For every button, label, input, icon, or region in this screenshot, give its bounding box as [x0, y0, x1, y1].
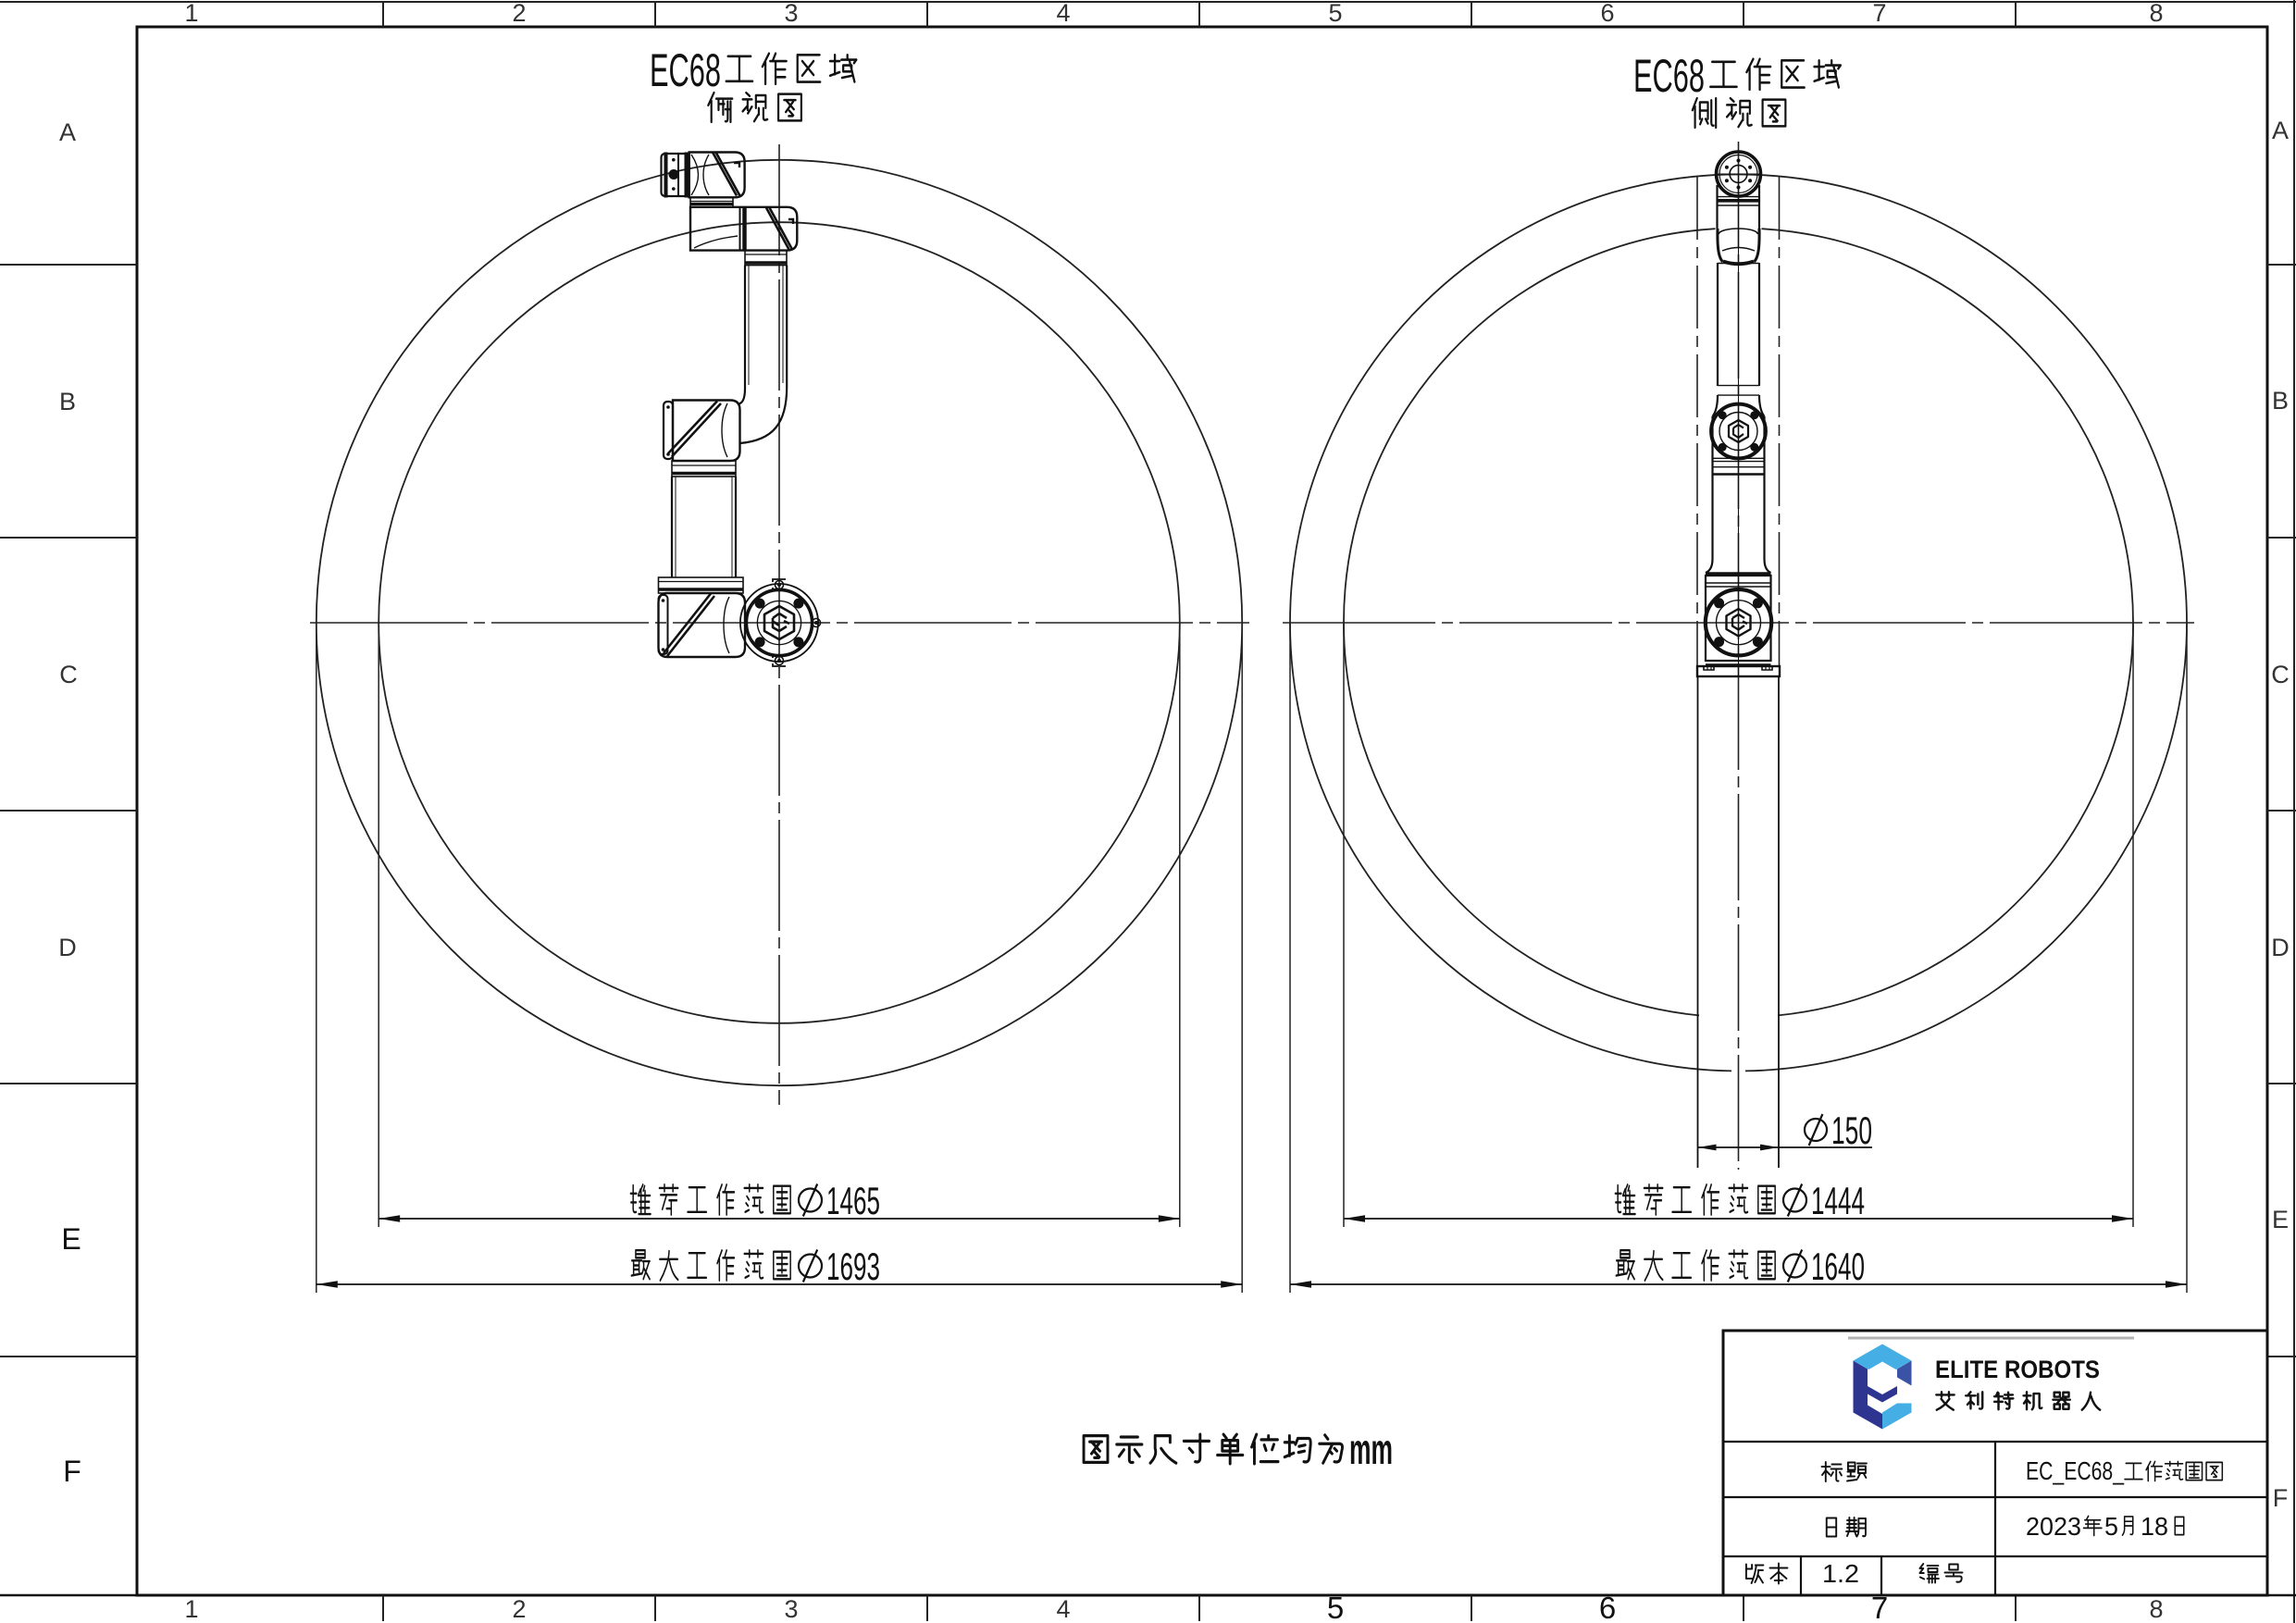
svg-text:6: 6 [1600, 0, 1614, 27]
svg-text:3: 3 [784, 1595, 798, 1623]
svg-text:C: C [2271, 661, 2290, 688]
svg-text:1693: 1693 [826, 1245, 880, 1288]
svg-text:4: 4 [1056, 1595, 1070, 1623]
svg-text:2023: 2023 [2026, 1512, 2081, 1541]
svg-text:5: 5 [2104, 1512, 2118, 1541]
svg-text:7: 7 [1872, 0, 1886, 27]
svg-text:2: 2 [512, 1595, 526, 1623]
svg-text:F: F [2273, 1484, 2289, 1512]
svg-text:1640: 1640 [1811, 1245, 1865, 1288]
svg-text:A: A [2272, 117, 2289, 144]
svg-text:E: E [61, 1222, 81, 1256]
svg-text:5: 5 [1327, 1591, 1344, 1623]
svg-text:B: B [2272, 387, 2289, 415]
svg-text:2: 2 [512, 0, 526, 27]
svg-text:D: D [2271, 934, 2290, 961]
svg-text:8: 8 [2149, 0, 2163, 27]
svg-text:C: C [59, 661, 78, 688]
svg-text:A: A [59, 118, 76, 146]
svg-text:6: 6 [1599, 1591, 1616, 1623]
svg-text:1: 1 [184, 0, 198, 27]
svg-text:18: 18 [2141, 1512, 2168, 1541]
svg-text:1.2: 1.2 [1822, 1559, 1859, 1588]
svg-text:EC68: EC68 [1633, 50, 1705, 102]
svg-text:1444: 1444 [1811, 1179, 1865, 1222]
svg-text:EC_EC68_: EC_EC68_ [2026, 1456, 2124, 1485]
svg-text:D: D [58, 934, 77, 961]
svg-text:4: 4 [1056, 0, 1070, 27]
svg-text:ELITE ROBOTS: ELITE ROBOTS [1935, 1356, 2100, 1383]
svg-text:1465: 1465 [826, 1179, 880, 1222]
svg-text:5: 5 [1328, 0, 1342, 27]
svg-text:EC68: EC68 [650, 44, 721, 96]
svg-text:B: B [59, 388, 76, 415]
svg-text:150: 150 [1831, 1109, 1872, 1152]
svg-text:mm: mm [1349, 1425, 1393, 1473]
svg-text:F: F [63, 1455, 81, 1488]
svg-text:3: 3 [784, 0, 798, 27]
svg-text:E: E [2272, 1206, 2289, 1233]
svg-text:1: 1 [184, 1595, 198, 1623]
svg-text:8: 8 [2149, 1595, 2163, 1623]
